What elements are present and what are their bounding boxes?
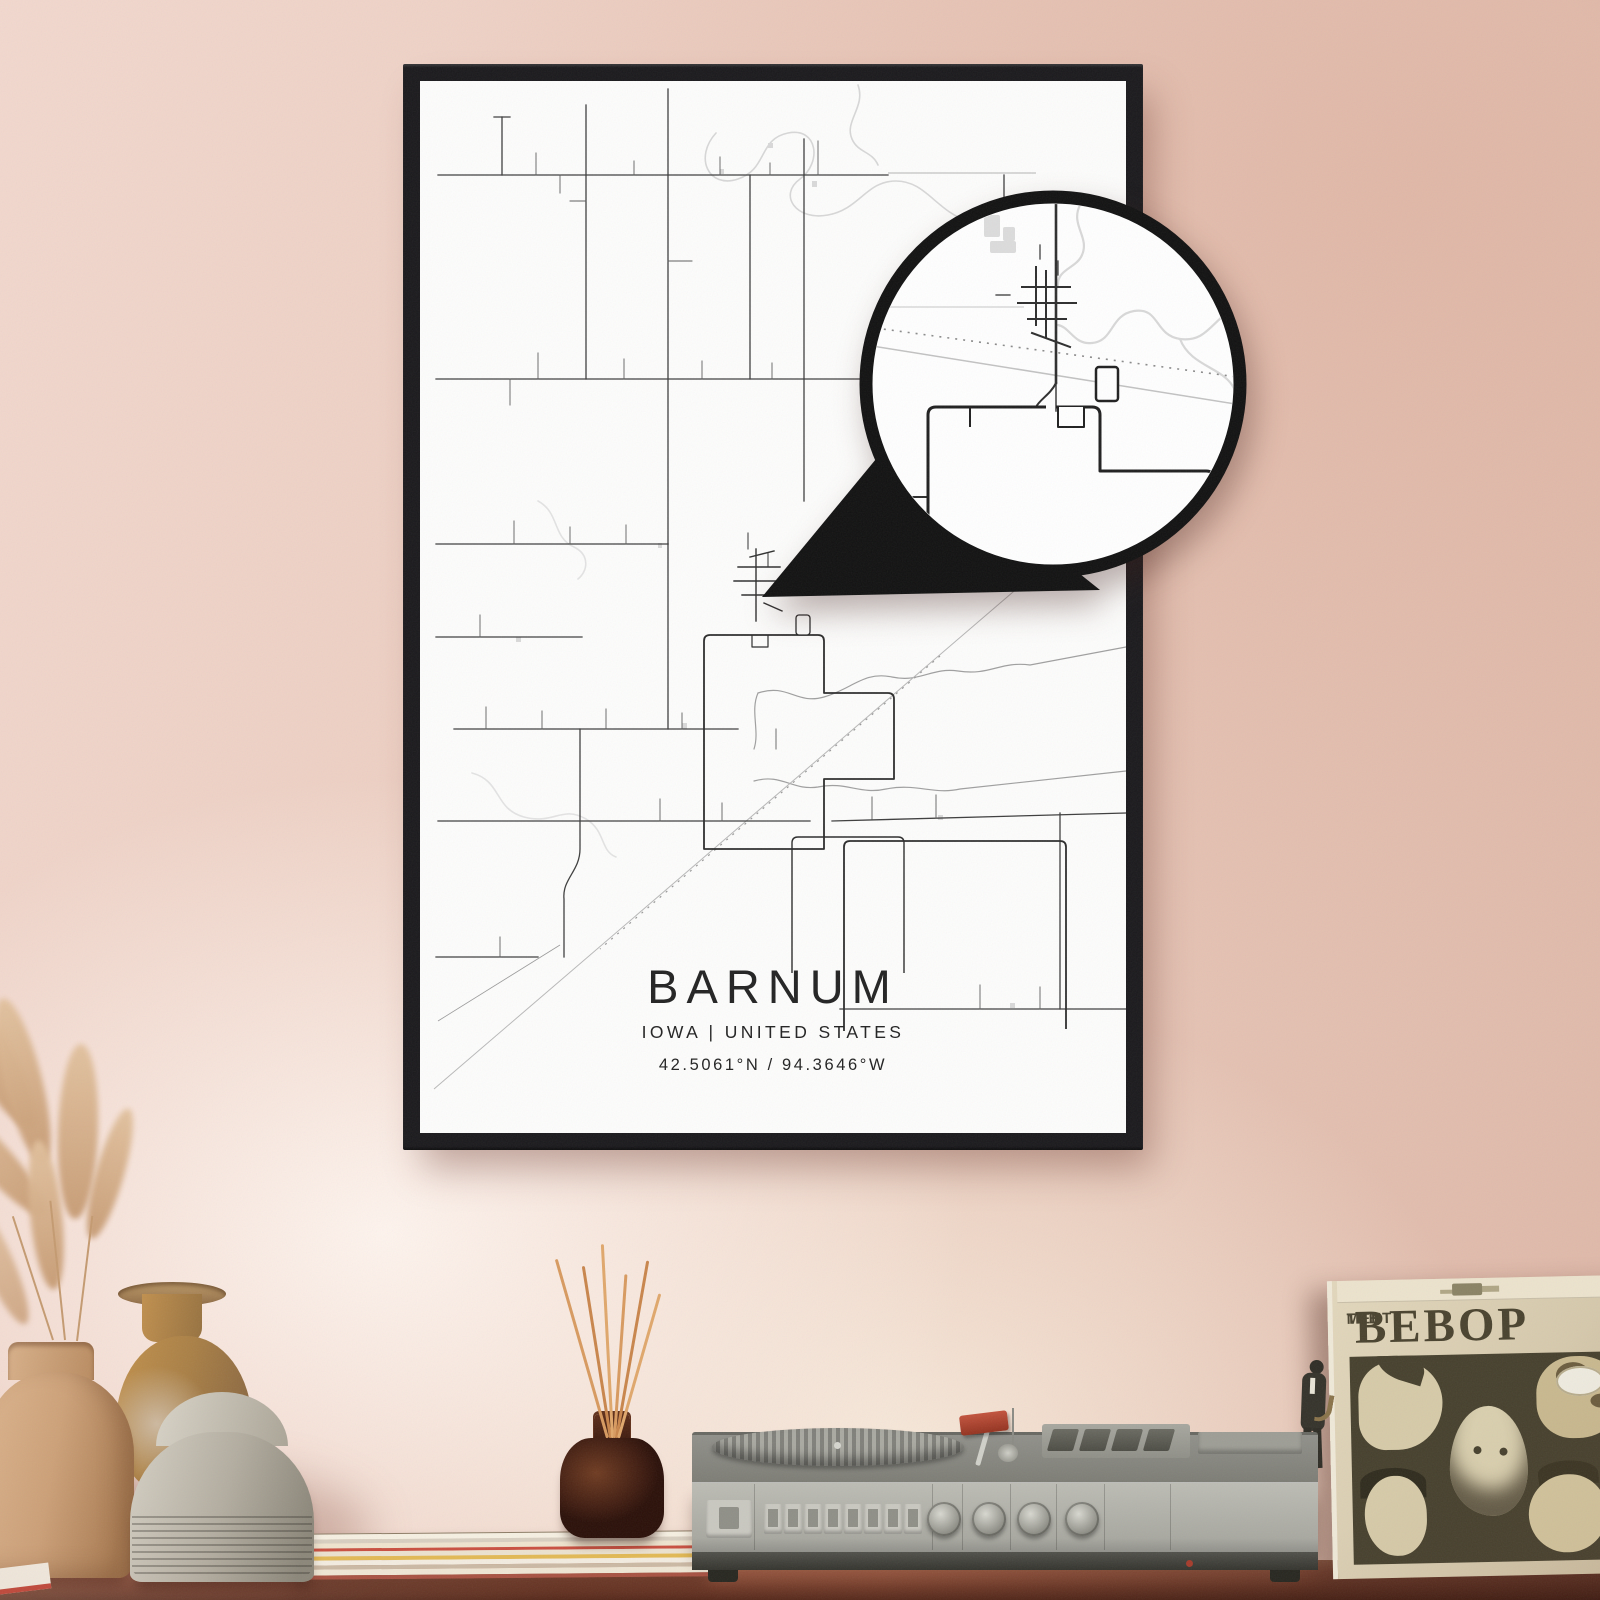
magnifier-callout [740, 175, 1260, 625]
album-label-logo [1452, 1283, 1482, 1296]
reed-diffuser [560, 1414, 664, 1538]
knob-treble [1017, 1502, 1051, 1536]
album-title: MEET THE BEBOP [1346, 1301, 1600, 1353]
room-scene: MEET THE BEBOP [0, 0, 1600, 1600]
album-title-bebop: BEBOP [1354, 1303, 1529, 1349]
bebop-record-album: MEET THE BEBOP [1327, 1275, 1600, 1579]
poster-subtitle: IOWA | UNITED STATES [642, 1022, 905, 1042]
magnifier-disc [866, 197, 1240, 571]
player-base [692, 1552, 1318, 1570]
preset-buttons [764, 1504, 924, 1536]
key-deck [1042, 1424, 1190, 1458]
record-player [692, 1404, 1318, 1580]
tan-vase [0, 1372, 134, 1578]
knob-volume [927, 1502, 961, 1536]
gray-vase-ribs [132, 1516, 312, 1578]
side-tray [1198, 1432, 1302, 1454]
power-indicator [1186, 1560, 1193, 1567]
power-button [706, 1500, 752, 1538]
player-foot-right [1270, 1570, 1300, 1582]
album-oval-badge [1556, 1365, 1600, 1396]
diffuser-bottle [560, 1438, 664, 1538]
player-foot-left [708, 1570, 738, 1582]
knob-bass [972, 1502, 1006, 1536]
poster-title: BARNUM [647, 960, 899, 1013]
album-artwork [1350, 1351, 1600, 1565]
knob-tuning [1065, 1502, 1099, 1536]
cue-knob [998, 1444, 1018, 1462]
platter-spindle [834, 1442, 841, 1449]
poster-coordinates: 42.5061°N / 94.3646°W [659, 1056, 887, 1074]
